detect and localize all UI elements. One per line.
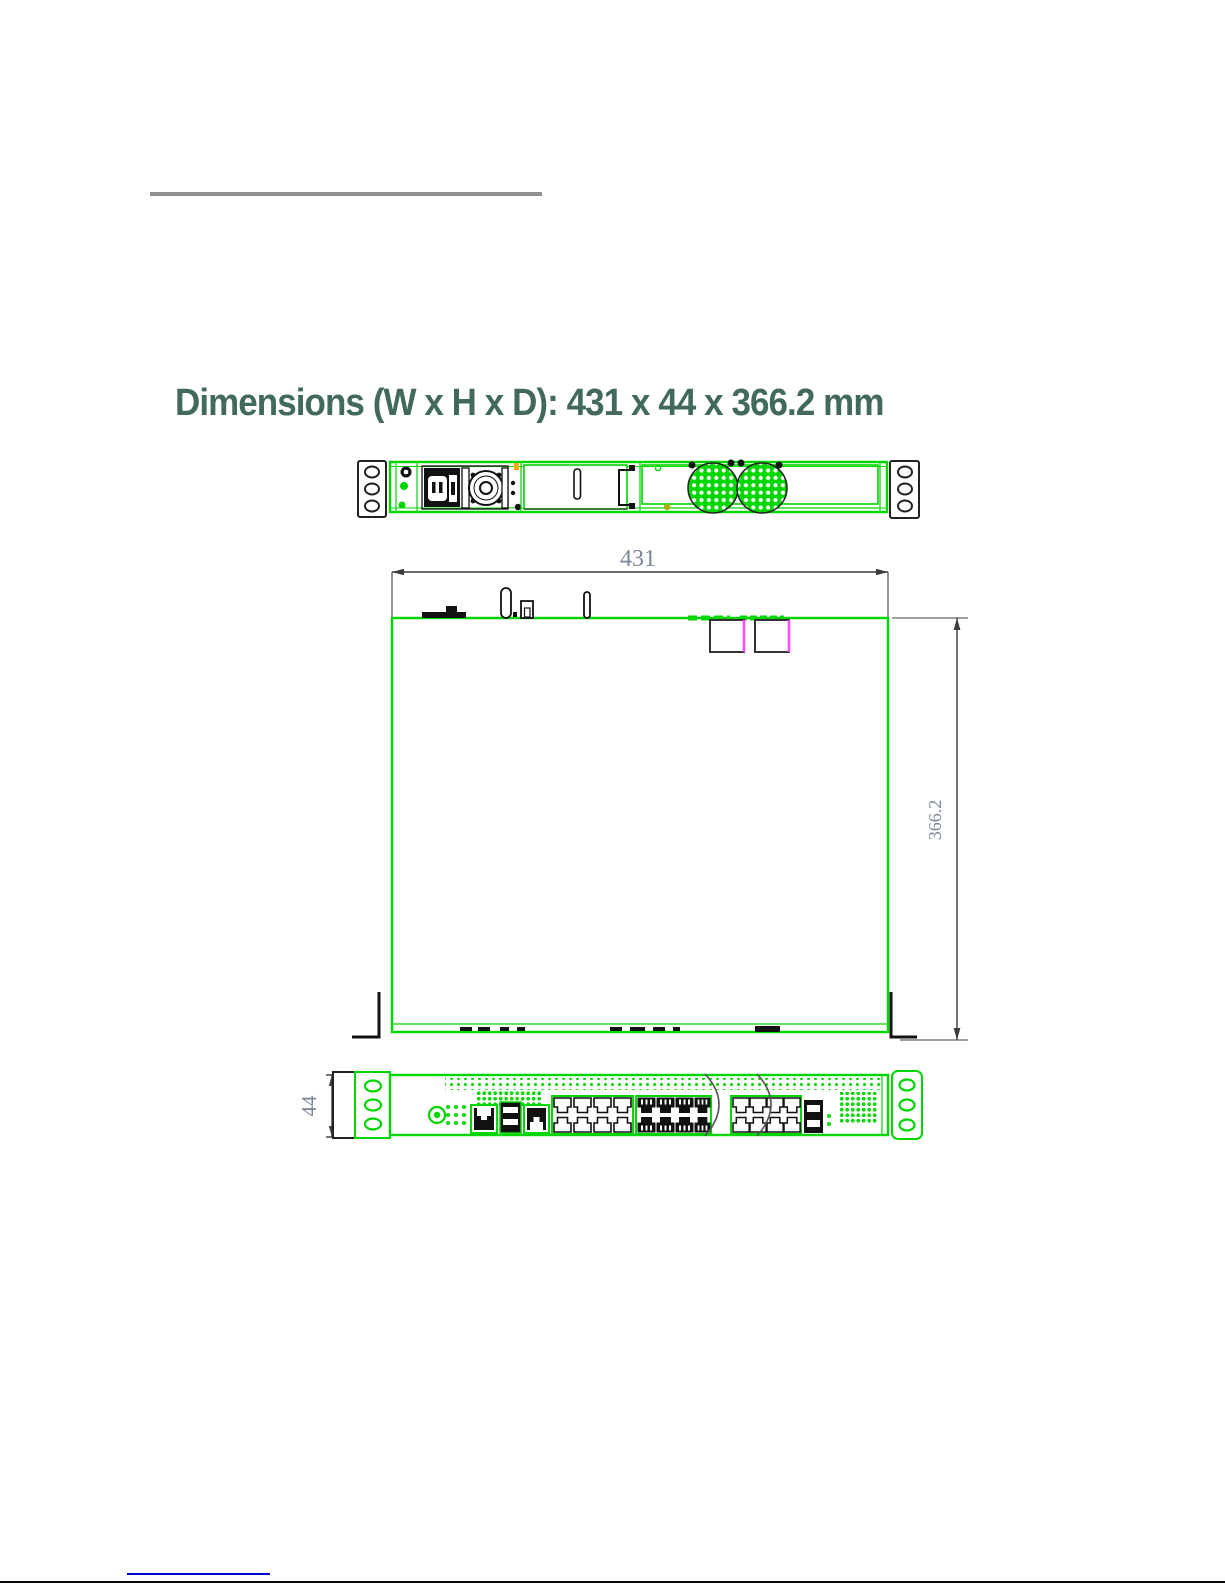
reset-button-icon [429,1107,445,1123]
rj45-port-group-1 [552,1096,633,1134]
fan-grille-icon [737,463,787,513]
top-view-drawing: 431 [300,535,975,1055]
rear-left-mounting-ear [358,461,386,517]
top-horizontal-rule [150,192,542,196]
width-dimension: 431 [392,546,888,617]
width-dimension-label: 431 [620,546,656,572]
led-indicators [446,1105,466,1125]
psu-fan-icon [462,468,508,508]
top-edge-connectors [422,588,590,618]
antenna-post-icon [501,588,511,618]
depth-dimension-label: 366.2 [925,800,945,841]
page-title: Dimensions (W x H x D): 431 x 44 x 366.2… [175,382,874,425]
usb-ports-icon [500,1102,521,1133]
fan-grille-icon [688,463,738,513]
rear-right-mounting-ear [890,461,919,518]
top-chassis-outline [392,618,888,1032]
plate-slot [574,469,581,499]
console-port-icon [471,1105,497,1133]
power-inlet-icon [424,468,460,507]
vent-dot-band [445,1078,881,1090]
rj45-port-group-3 [731,1096,801,1134]
page-bottom-border [0,1581,1225,1583]
rear-blank-plate [521,462,627,512]
document-page: Dimensions (W x H x D): 431 x 44 x 366.2… [0,0,1225,1585]
antenna-post-icon [584,592,590,618]
rear-view-drawing [350,452,925,522]
mgmt-port-icon [524,1105,549,1133]
vent-dense-block [840,1092,878,1124]
front-left-mounting-ear [333,1072,390,1138]
rj45-port-group-2 [636,1096,711,1134]
footer-link-underline[interactable] [127,1573,270,1575]
height-dimension-label: 44 [297,1095,321,1117]
front-view-drawing: 44 [295,1058,935,1150]
depth-dimension: 366.2 [892,618,968,1040]
orange-marker [514,463,519,470]
front-right-mounting-ear [892,1071,922,1139]
